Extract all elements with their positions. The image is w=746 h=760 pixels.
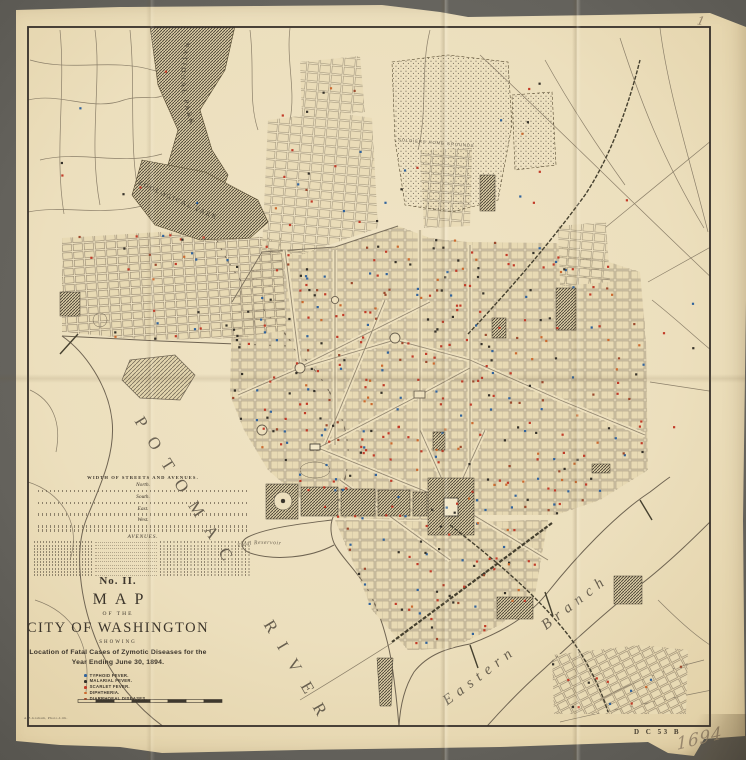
case-dot-scarlet — [598, 325, 600, 327]
cemetery-area — [512, 92, 556, 170]
case-dot-scarlet — [291, 149, 293, 151]
case-dot-malarial — [311, 368, 313, 370]
case-dot-scarlet — [506, 254, 508, 256]
case-dot-diarrhoeal — [287, 263, 289, 265]
case-dot-scarlet — [382, 436, 384, 438]
legend-color-dot — [84, 686, 87, 689]
case-dot-scarlet — [493, 568, 495, 570]
case-dot-malarial — [504, 592, 506, 594]
case-dot-malarial — [692, 347, 694, 349]
case-dot-diphtheria — [462, 268, 464, 270]
legend-item-label: SCARLET FEVER. — [90, 685, 130, 689]
case-dot-diphtheria — [505, 484, 507, 486]
case-dot-typhoid — [307, 388, 309, 390]
avenue-row — [34, 541, 252, 543]
case-dot-diphtheria — [114, 336, 116, 338]
case-dot-malarial — [635, 373, 637, 375]
case-dot-scarlet — [307, 489, 309, 491]
case-dot-scarlet — [455, 270, 457, 272]
avenue-width-line — [160, 554, 252, 556]
case-dot-scarlet — [307, 317, 309, 319]
case-dot-typhoid — [256, 419, 258, 421]
case-dot-diphtheria — [261, 446, 263, 448]
case-dot-malarial — [527, 499, 529, 501]
case-dot-malarial — [527, 121, 529, 123]
case-dot-scarlet — [489, 558, 491, 560]
avenue-name-line — [34, 568, 92, 570]
case-dot-malarial — [427, 318, 429, 320]
case-dot-malarial — [477, 267, 479, 269]
case-dot-diarrhoeal — [460, 446, 462, 448]
case-dot-malarial — [535, 432, 537, 434]
case-dot-scarlet — [585, 483, 587, 485]
case-dot-diphtheria — [573, 463, 575, 465]
case-dot-diphtheria — [518, 589, 520, 591]
avenue-leader — [95, 568, 157, 569]
case-dot-typhoid — [417, 589, 419, 591]
case-dot-scarlet — [425, 353, 427, 355]
case-dot-scarlet — [248, 343, 250, 345]
case-dot-scarlet — [407, 436, 409, 438]
case-dot-diphtheria — [507, 529, 509, 531]
case-dot-scarlet — [461, 380, 463, 382]
case-dot-scarlet — [479, 311, 481, 313]
case-dot-scarlet — [448, 534, 450, 536]
case-dot-diphtheria — [320, 319, 322, 321]
case-dot-scarlet — [524, 600, 526, 602]
case-dot-diphtheria — [444, 428, 446, 430]
case-dot-diarrhoeal — [508, 465, 510, 467]
showing-label: SHOWING — [18, 640, 218, 645]
case-dot-diarrhoeal — [399, 359, 401, 361]
case-dot-scarlet — [280, 443, 282, 445]
street-table-sections: North.South.East.West. — [32, 483, 254, 532]
case-dot-diphtheria — [616, 368, 618, 370]
case-dot-scarlet — [390, 480, 392, 482]
avenue-leader — [95, 552, 157, 553]
case-dot-diarrhoeal — [316, 289, 318, 291]
legend-color-dot — [84, 698, 87, 701]
case-dot-typhoid — [491, 350, 493, 352]
case-dot-scarlet — [363, 452, 365, 454]
case-dot-malarial — [285, 459, 287, 461]
case-dot-malarial — [225, 324, 227, 326]
case-dot-diphtheria — [302, 301, 304, 303]
case-dot-typhoid — [256, 389, 258, 391]
case-dot-diphtheria — [381, 365, 383, 367]
case-dot-malarial — [122, 193, 124, 195]
case-dot-diphtheria — [275, 207, 277, 209]
avenue-name-line — [34, 541, 92, 543]
case-dot-scarlet — [362, 336, 364, 338]
case-dot-malarial — [424, 552, 426, 554]
case-dot-malarial — [320, 342, 322, 344]
case-dot-malarial — [477, 276, 479, 278]
case-dot-typhoid — [567, 490, 569, 492]
case-dot-typhoid — [500, 119, 502, 121]
case-dot-malarial — [308, 173, 310, 175]
case-dot-diarrhoeal — [592, 394, 594, 396]
avenue-width-line — [160, 561, 252, 563]
case-dot-diphtheria — [364, 400, 366, 402]
case-dot-diphtheria — [436, 449, 438, 451]
case-dot-diarrhoeal — [558, 470, 560, 472]
case-dot-malarial — [123, 248, 125, 250]
case-dot-diarrhoeal — [483, 574, 485, 576]
case-dot-malarial — [395, 261, 397, 263]
case-dot-scarlet — [433, 357, 435, 359]
case-dot-scarlet — [498, 327, 500, 329]
avenue-width-line — [160, 564, 252, 566]
case-dot-scarlet — [442, 450, 444, 452]
case-dot-scarlet — [165, 71, 167, 73]
case-dot-scarlet — [299, 403, 301, 405]
case-dot-typhoid — [363, 430, 365, 432]
case-dot-scarlet — [547, 488, 549, 490]
case-dot-diarrhoeal — [436, 638, 438, 640]
avenue-name-line — [34, 561, 92, 563]
case-dot-malarial — [431, 626, 433, 628]
case-dot-diphtheria — [493, 484, 495, 486]
case-dot-scarlet — [200, 327, 202, 329]
case-dot-typhoid — [511, 506, 513, 508]
case-dot-typhoid — [226, 259, 228, 261]
case-dot-malarial — [441, 290, 443, 292]
case-dot-diphtheria — [540, 336, 542, 338]
case-dot-scarlet — [626, 199, 628, 201]
case-dot-typhoid — [615, 437, 617, 439]
case-dot-typhoid — [360, 151, 362, 153]
case-dot-typhoid — [591, 326, 593, 328]
case-dot-diarrhoeal — [326, 424, 328, 426]
street-table-title: WIDTH OF STREETS AND AVENUES. — [32, 476, 254, 481]
case-dot-scarlet — [470, 404, 472, 406]
case-dot-scarlet — [583, 455, 585, 457]
case-dot-typhoid — [317, 306, 319, 308]
case-dot-diphtheria — [330, 87, 332, 89]
case-dot-diarrhoeal — [384, 294, 386, 296]
case-dot-diarrhoeal — [338, 354, 340, 356]
case-dot-malarial — [440, 526, 442, 528]
avenue-name-line — [34, 558, 92, 560]
case-dot-scarlet — [484, 625, 486, 627]
case-dot-malarial — [300, 275, 302, 277]
legend-item: DIPHTHERIA. — [84, 691, 218, 695]
case-dot-diarrhoeal — [276, 428, 278, 430]
legend-item: TYPHOID FEVER. — [84, 674, 218, 678]
case-dot-diphtheria — [576, 414, 578, 416]
case-dot-scarlet — [567, 679, 569, 681]
case-dot-diphtheria — [390, 442, 392, 444]
case-dot-scarlet — [430, 618, 432, 620]
case-dot-diphtheria — [597, 442, 599, 444]
case-dot-typhoid — [324, 276, 326, 278]
case-dot-malarial — [442, 247, 444, 249]
case-dot-scarlet — [339, 364, 341, 366]
avenues-label: AVENUES. — [32, 535, 254, 540]
case-dot-diarrhoeal — [366, 247, 368, 249]
case-dot-scarlet — [556, 327, 558, 329]
case-dot-typhoid — [462, 559, 464, 561]
case-dot-scarlet — [299, 290, 301, 292]
case-dot-scarlet — [416, 167, 418, 169]
case-dot-malarial — [540, 319, 542, 321]
case-dot-typhoid — [450, 294, 452, 296]
avenue-leader — [95, 555, 157, 556]
avenue-width-line — [160, 548, 252, 550]
case-dot-malarial — [641, 451, 643, 453]
case-dot-scarlet — [360, 446, 362, 448]
case-dot-malarial — [236, 339, 238, 341]
case-dot-typhoid — [195, 259, 197, 261]
case-dot-typhoid — [196, 202, 198, 204]
case-dot-scarlet — [383, 384, 385, 386]
case-dot-diphtheria — [417, 439, 419, 441]
case-dot-typhoid — [270, 411, 272, 413]
case-dot-scarlet — [479, 434, 481, 436]
case-dot-diarrhoeal — [542, 399, 544, 401]
case-dot-typhoid — [260, 319, 262, 321]
case-dot-diarrhoeal — [232, 397, 234, 399]
case-dot-scarlet — [641, 442, 643, 444]
case-dot-scarlet — [513, 529, 515, 531]
case-dot-scarlet — [640, 420, 642, 422]
case-dot-malarial — [295, 372, 297, 374]
case-dot-typhoid — [349, 544, 351, 546]
case-dot-malarial — [398, 551, 400, 553]
case-dot-diphtheria — [575, 481, 577, 483]
case-dot-typhoid — [404, 169, 406, 171]
case-dot-diphtheria — [560, 271, 562, 273]
case-dot-diphtheria — [508, 563, 510, 565]
case-dot-malarial — [266, 417, 268, 419]
case-dot-typhoid — [299, 474, 301, 476]
legend-item-label: TYPHOID FEVER. — [90, 674, 129, 678]
case-dot-malarial — [556, 512, 558, 514]
case-dot-diphtheria — [454, 240, 456, 242]
case-dot-diarrhoeal — [79, 236, 81, 238]
street-table-section-label: West. — [32, 518, 254, 523]
title-block: No. II. MAP OF THE CITY OF WASHINGTON SH… — [18, 576, 218, 703]
legend-color-dot — [84, 692, 87, 695]
case-dot-typhoid — [472, 633, 474, 635]
case-dot-typhoid — [261, 297, 263, 299]
case-dot-scarlet — [507, 482, 509, 484]
case-dot-malarial — [480, 343, 482, 345]
case-dot-diarrhoeal — [623, 452, 625, 454]
case-dot-typhoid — [321, 434, 323, 436]
case-dot-typhoid — [375, 474, 377, 476]
case-dot-malarial — [452, 316, 454, 318]
case-dot-scarlet — [617, 393, 619, 395]
case-dot-scarlet — [373, 454, 375, 456]
case-dot-scarlet — [486, 365, 488, 367]
case-dot-malarial — [468, 463, 470, 465]
case-dot-malarial — [449, 595, 451, 597]
avenue-row — [34, 554, 252, 556]
case-dot-diphtheria — [515, 352, 517, 354]
case-dot-scarlet — [175, 263, 177, 265]
case-dot-typhoid — [539, 247, 541, 249]
avenue-leader — [95, 542, 157, 543]
case-dot-malarial — [488, 394, 490, 396]
case-dot-malarial — [349, 475, 351, 477]
case-dot-scarlet — [324, 506, 326, 508]
case-dot-diarrhoeal — [351, 282, 353, 284]
case-dot-scarlet — [354, 515, 356, 517]
case-dot-scarlet — [495, 557, 497, 559]
case-dot-typhoid — [490, 408, 492, 410]
of-the: OF THE — [18, 612, 218, 618]
case-dot-scarlet — [385, 514, 387, 516]
case-dot-malarial — [61, 162, 63, 164]
map-series-number: No. II. — [18, 576, 218, 587]
case-dot-typhoid — [555, 261, 557, 263]
case-dot-diarrhoeal — [364, 568, 366, 570]
case-dot-malarial — [552, 663, 554, 665]
case-dot-diarrhoeal — [519, 402, 521, 404]
case-dot-typhoid — [572, 286, 574, 288]
case-dot-diphtheria — [437, 279, 439, 281]
case-dot-typhoid — [525, 296, 527, 298]
case-dot-malarial — [236, 266, 238, 268]
legend-list: TYPHOID FEVER.MALARIAL FEVER.SCARLET FEV… — [18, 674, 218, 701]
case-dot-malarial — [452, 601, 454, 603]
case-dot-diarrhoeal — [606, 287, 608, 289]
case-dot-scarlet — [440, 403, 442, 405]
avenue-row — [34, 548, 252, 550]
case-dot-typhoid — [508, 397, 510, 399]
street-table-row — [38, 529, 248, 532]
case-dot-scarlet — [533, 202, 535, 204]
case-dot-typhoid — [460, 415, 462, 417]
case-dot-diarrhoeal — [472, 380, 474, 382]
case-dot-malarial — [241, 373, 243, 375]
case-dot-scarlet — [289, 224, 291, 226]
scanned-map-sheet: NATIONAL PARK ZOOLOGICAL PARK SOLDIERS H… — [0, 0, 746, 760]
case-dot-diarrhoeal — [494, 242, 496, 244]
case-dot-scarlet — [464, 284, 466, 286]
case-dot-scarlet — [477, 380, 479, 382]
case-dot-typhoid — [194, 328, 196, 330]
case-dot-typhoid — [441, 432, 443, 434]
case-dot-typhoid — [340, 368, 342, 370]
case-dot-scarlet — [285, 418, 287, 420]
case-dot-diarrhoeal — [425, 361, 427, 363]
avenue-name-line — [34, 564, 92, 566]
avenue-name-line — [34, 551, 92, 553]
case-dot-diphtheria — [339, 304, 341, 306]
case-dot-scarlet — [287, 254, 289, 256]
case-dot-typhoid — [335, 478, 337, 480]
case-dot-scarlet — [499, 480, 501, 482]
street-table-row — [38, 513, 248, 516]
case-dot-malarial — [234, 390, 236, 392]
case-dot-scarlet — [607, 266, 609, 268]
case-dot-typhoid — [404, 515, 406, 517]
case-dot-scarlet — [417, 379, 419, 381]
case-dot-malarial — [376, 220, 378, 222]
case-dot-scarlet — [476, 560, 478, 562]
case-dot-scarlet — [483, 629, 485, 631]
case-dot-typhoid — [524, 430, 526, 432]
case-dot-malarial — [491, 359, 493, 361]
avenue-leader — [95, 545, 157, 546]
case-dot-scarlet — [554, 489, 556, 491]
case-dot-scarlet — [592, 286, 594, 288]
case-dot-malarial — [588, 682, 590, 684]
case-dot-malarial — [555, 357, 557, 359]
legend-item: SCARLET FEVER. — [84, 685, 218, 689]
case-dot-malarial — [306, 268, 308, 270]
case-dot-scarlet — [282, 114, 284, 116]
case-dot-malarial — [409, 263, 411, 265]
case-dot-typhoid — [425, 642, 427, 644]
case-dot-malarial — [488, 346, 490, 348]
case-dot-scarlet — [409, 556, 411, 558]
case-dot-malarial — [435, 239, 437, 241]
case-dot-typhoid — [79, 107, 81, 109]
case-dot-scarlet — [264, 409, 266, 411]
avenue-width-line — [160, 551, 252, 553]
street-table-section-label: South. — [32, 495, 254, 500]
avenue-name-line — [34, 571, 92, 573]
case-dot-typhoid — [325, 464, 327, 466]
avenue-leader — [95, 561, 157, 562]
case-dot-scarlet — [333, 480, 335, 482]
case-dot-typhoid — [446, 271, 448, 273]
case-dot-malarial — [289, 392, 291, 394]
case-dot-scarlet — [360, 341, 362, 343]
case-dot-malarial — [563, 268, 565, 270]
case-dot-scarlet — [459, 305, 461, 307]
legend-color-dot — [84, 674, 87, 677]
case-dot-scarlet — [528, 88, 530, 90]
case-dot-typhoid — [297, 183, 299, 185]
case-dot-scarlet — [559, 503, 561, 505]
case-dot-diarrhoeal — [328, 399, 330, 401]
case-dot-scarlet — [539, 171, 541, 173]
case-dot-scarlet — [365, 449, 367, 451]
case-dot-scarlet — [440, 345, 442, 347]
case-dot-scarlet — [359, 221, 361, 223]
case-dot-scarlet — [153, 310, 155, 312]
street-table-row — [38, 525, 248, 528]
case-dot-scarlet — [471, 491, 473, 493]
case-dot-scarlet — [437, 599, 439, 601]
case-dot-malarial — [431, 509, 433, 511]
case-dot-scarlet — [429, 295, 431, 297]
case-dot-typhoid — [191, 252, 193, 254]
case-dot-malarial — [343, 359, 345, 361]
case-dot-scarlet — [388, 432, 390, 434]
case-dot-diarrhoeal — [155, 264, 157, 266]
case-dot-diphtheria — [561, 479, 563, 481]
case-dot-diarrhoeal — [388, 289, 390, 291]
case-dot-malarial — [247, 311, 249, 313]
avenue-width-line — [160, 568, 252, 570]
case-dot-malarial — [572, 706, 574, 708]
case-dot-scarlet — [305, 284, 307, 286]
case-dot-scarlet — [317, 370, 319, 372]
case-dot-malarial — [114, 331, 116, 333]
case-dot-malarial — [360, 452, 362, 454]
case-dot-typhoid — [306, 335, 308, 337]
avenue-leader — [95, 571, 157, 572]
case-dot-scarlet — [663, 332, 665, 334]
case-dot-scarlet — [415, 642, 417, 644]
case-dot-diphtheria — [477, 522, 479, 524]
